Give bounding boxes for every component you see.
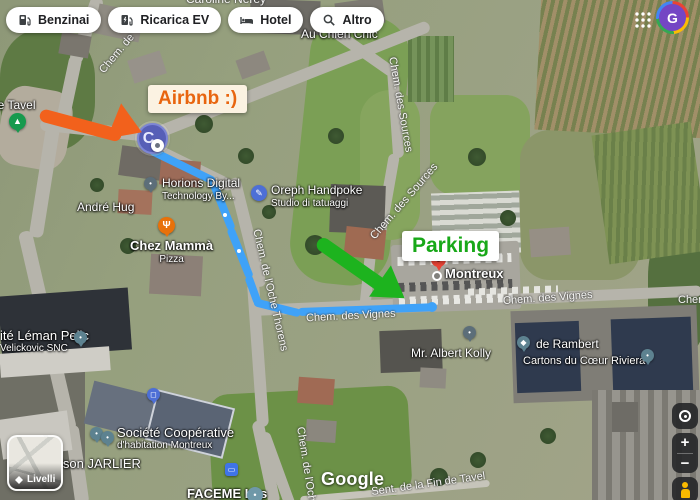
- building: [305, 419, 336, 443]
- place-label: Mr. Albert Kolly: [411, 347, 491, 360]
- place-pin[interactable]: •: [641, 349, 654, 362]
- avatar-initial: G: [659, 4, 686, 31]
- tree: [195, 115, 213, 133]
- place-label: Société Coopératived'habitation Montreux: [117, 426, 234, 452]
- place-label: Oreph HandpokeStudio di tatuaggi: [271, 184, 362, 210]
- place-pin[interactable]: •: [463, 326, 476, 339]
- vineyard: [591, 122, 700, 265]
- layers-icon: [15, 476, 23, 484]
- place-label: Montreux: [445, 267, 504, 281]
- tree: [540, 428, 556, 444]
- filter-chip-altro[interactable]: Altro: [310, 7, 383, 33]
- tree: [238, 148, 254, 164]
- zoom-out-button[interactable]: −: [672, 454, 698, 474]
- category-filter-bar: Benzinai Ricarica EV Hotel Altro: [6, 7, 384, 33]
- ev-charger-icon: [120, 13, 134, 27]
- terrain-patch: [430, 95, 530, 195]
- filter-chip-hotel[interactable]: Hotel: [228, 7, 303, 33]
- tree: [470, 452, 486, 468]
- place-icon[interactable]: •: [247, 487, 263, 500]
- building: [127, 50, 167, 83]
- filter-chip-label: Altro: [342, 13, 371, 27]
- google-apps-grid-icon[interactable]: [634, 11, 651, 28]
- place-label: Horions DigitalTechnology By...: [162, 177, 240, 203]
- place-label: de Rambert: [536, 338, 599, 351]
- pegman-icon: [682, 482, 688, 488]
- street-label: Chem. des Vignes: [678, 294, 700, 307]
- school-pin[interactable]: ◆: [517, 336, 530, 349]
- fuel-pump-icon: [18, 13, 32, 27]
- place-label: Chez MammàPizza: [130, 239, 213, 266]
- place-label: ison JARLIER: [60, 457, 141, 470]
- route-dot: [223, 213, 227, 217]
- park-pin[interactable]: ▲: [9, 113, 26, 130]
- location-dot[interactable]: [151, 139, 164, 152]
- bus-stop-icon[interactable]: ▭: [225, 463, 238, 476]
- parking-annotation: Parking: [402, 231, 499, 261]
- tattoo-studio-pin[interactable]: ✎: [251, 185, 267, 201]
- layers-toggle[interactable]: Livelli: [7, 435, 63, 491]
- route-endpoint: [427, 302, 437, 312]
- building: [419, 367, 446, 388]
- tree: [328, 128, 344, 144]
- place-pin[interactable]: •: [74, 331, 87, 344]
- my-location-button[interactable]: [672, 403, 698, 429]
- route-dot: [237, 249, 241, 253]
- filter-chip-label: Ricarica EV: [140, 13, 209, 27]
- bed-icon: [240, 13, 254, 27]
- tree: [90, 178, 104, 192]
- filter-chip-label: Hotel: [260, 13, 291, 27]
- layers-label-bar: Livelli: [9, 463, 61, 489]
- tree: [468, 148, 486, 166]
- place-label: de Tavel: [0, 99, 35, 112]
- restaurant-pin[interactable]: Ψ: [158, 217, 175, 234]
- montreux-ring-dot: [432, 271, 442, 281]
- shopping-pin[interactable]: ◻: [147, 388, 160, 401]
- account-avatar[interactable]: G: [656, 1, 689, 34]
- building: [297, 377, 335, 405]
- search-icon: [322, 13, 336, 27]
- pegman-body: [681, 489, 690, 498]
- orchard: [408, 36, 454, 102]
- place-label: Cartons du Cœur Riviera: [523, 355, 645, 368]
- my-location-icon: [679, 410, 691, 422]
- building: [529, 227, 571, 258]
- building: [235, 50, 270, 79]
- place-pin[interactable]: •: [144, 177, 157, 190]
- layers-label: Livelli: [27, 475, 55, 485]
- pegman-button[interactable]: [672, 477, 698, 500]
- place-pin[interactable]: •: [101, 431, 114, 444]
- map-canvas[interactable]: Caroline NereyAu Chien ChicChem. des Sou…: [0, 0, 700, 500]
- street-label: Caroline Nerey: [186, 0, 266, 6]
- filter-chip-label: Benzinai: [38, 13, 89, 27]
- airbnb-annotation: Airbnb :): [148, 85, 247, 113]
- place-label: André Hug: [77, 201, 134, 214]
- building: [612, 402, 638, 432]
- google-logo: Google: [321, 469, 384, 490]
- filter-chip-ricarica-ev[interactable]: Ricarica EV: [108, 7, 221, 33]
- filter-chip-benzinai[interactable]: Benzinai: [6, 7, 101, 33]
- zoom-control: + −: [672, 433, 698, 473]
- tree: [500, 210, 516, 226]
- zoom-in-button[interactable]: +: [672, 433, 698, 453]
